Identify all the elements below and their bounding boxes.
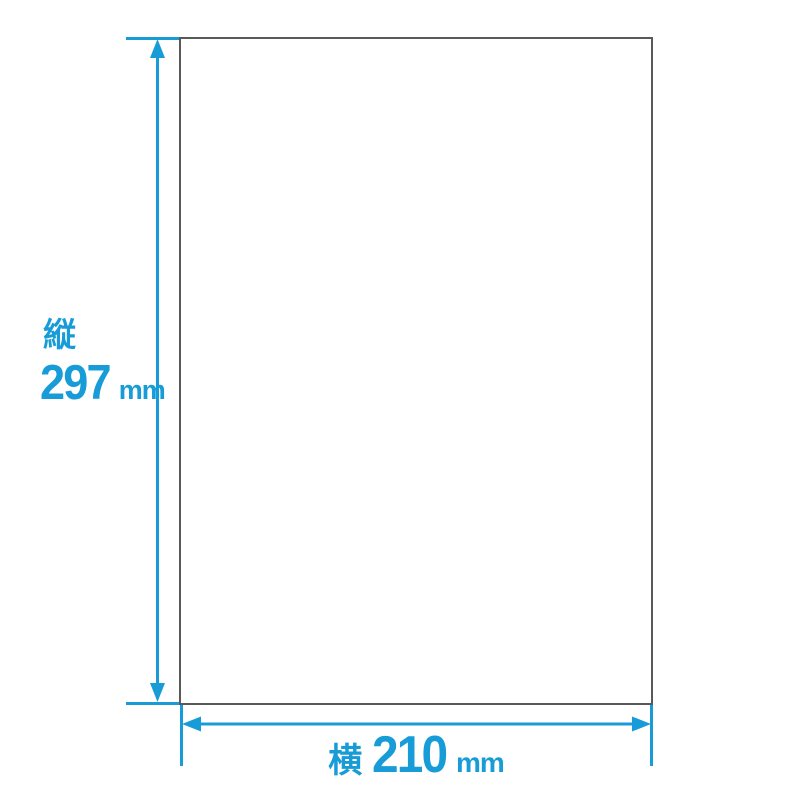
- height-unit: mm: [119, 377, 165, 404]
- width-axis-label: 横: [328, 744, 362, 778]
- arrowhead-up-icon: [150, 39, 165, 58]
- arrowhead-down-icon: [150, 683, 165, 702]
- width-value: 210: [372, 729, 446, 781]
- paper-outline: [179, 37, 653, 705]
- height-dimension-label: 縦 297 mm: [40, 318, 165, 408]
- height-value: 297: [40, 359, 110, 408]
- width-unit: mm: [456, 749, 504, 777]
- height-axis-label: 縦: [43, 318, 165, 351]
- diagram-canvas: 縦 297 mm 横 210 mm: [0, 0, 800, 800]
- height-value-row: 297 mm: [40, 359, 165, 408]
- width-dimension-label: 横 210 mm: [179, 729, 653, 781]
